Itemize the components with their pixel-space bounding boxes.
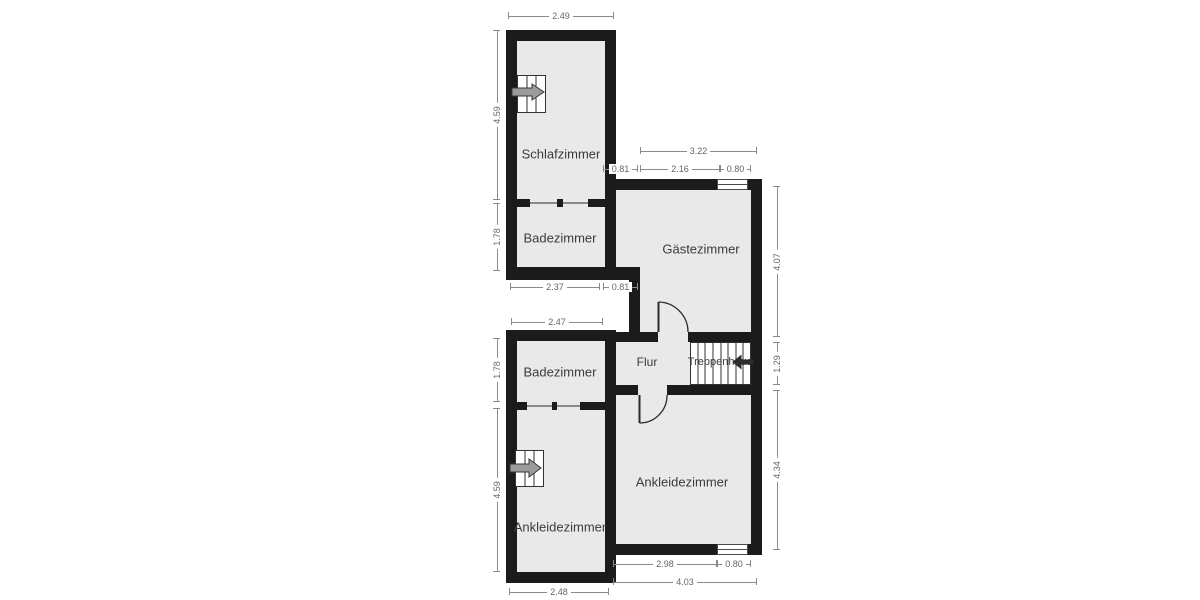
room-label-schlafzimmer: Schlafzimmer xyxy=(522,147,601,162)
window-icon-south xyxy=(717,544,748,555)
sliding-door-line xyxy=(563,202,588,204)
wall-segment xyxy=(588,199,605,207)
dimension-ankleidezimmer-right-window-width: 0.80 xyxy=(717,557,751,571)
ankleidezimmer-stairs-box xyxy=(515,450,544,487)
room-label-ankleidezimmer-right: Ankleidezimmer xyxy=(636,475,728,490)
dimension-badezimmer-top-height: 1.78 xyxy=(490,203,504,271)
room-label-badezimmer-bottom: Badezimmer xyxy=(524,365,597,380)
floor-plan: Schlafzimmer Badezimmer Gästezimmer Flur… xyxy=(0,0,1200,600)
room-label-ankleidezimmer-left: Ankleidezimmer xyxy=(514,520,606,535)
wall-segment xyxy=(506,267,640,280)
wall-segment xyxy=(506,30,616,41)
dimension-badezimmer-bottom-height: 1.78 xyxy=(490,338,504,402)
dimension-ankleidezimmer-right-total-width: 4.03 xyxy=(613,575,757,589)
dimension-gaestezimmer-wall-offset: 0.81 xyxy=(603,162,638,176)
wall-segment xyxy=(517,199,530,207)
dimension-treppenhaus-height: 1.29 xyxy=(770,342,784,385)
wall-segment xyxy=(506,30,517,277)
dimension-gaestezimmer-inner-width: 2.16 xyxy=(640,162,720,176)
dimension-badezimmer-bottom-width: 2.47 xyxy=(511,315,603,329)
dimension-gaestezimmer-window-width: 0.80 xyxy=(720,162,751,176)
room-label-badezimmer-top: Badezimmer xyxy=(524,231,597,246)
wall-segment xyxy=(667,385,762,395)
dimension-gaestezimmer-height: 4.07 xyxy=(770,186,784,337)
dimension-ankleidezimmer-right-inner-width: 2.98 xyxy=(613,557,717,571)
floor-door-threshold-gaestezimmer xyxy=(658,332,688,342)
dimension-ankleidezimmer-left-height: 4.59 xyxy=(490,408,504,572)
wall-segment xyxy=(506,572,616,583)
floor-door-threshold-ankleidezimmer xyxy=(638,385,667,395)
room-label-flur: Flur xyxy=(637,355,658,369)
schlafzimmer-stairs-box xyxy=(517,75,546,113)
floor-ankleidezimmer-right xyxy=(616,395,751,544)
sliding-door-line xyxy=(527,405,552,407)
wall-segment xyxy=(517,402,527,410)
room-label-gaestezimmer: Gästezimmer xyxy=(662,242,739,257)
wall-segment xyxy=(751,179,762,555)
wall-segment xyxy=(580,402,605,410)
dimension-badezimmer-top-width: 2.37 xyxy=(510,280,600,294)
wall-segment xyxy=(605,30,616,280)
dimension-schlafzimmer-width: 2.49 xyxy=(508,9,614,23)
room-label-treppenhaus: Treppenhaus xyxy=(688,356,752,368)
dimension-ankleidezimmer-left-width: 2.48 xyxy=(509,585,609,599)
sliding-door-line xyxy=(557,405,580,407)
window-icon-north xyxy=(717,179,748,190)
dimension-schlafzimmer-height: 4.59 xyxy=(490,30,504,200)
wall-segment xyxy=(506,330,616,341)
wall-segment xyxy=(605,330,616,583)
dimension-gaestezimmer-total-width: 3.22 xyxy=(640,144,757,158)
sliding-door-line xyxy=(530,202,557,204)
wall-segment xyxy=(688,332,762,342)
dimension-corridor-offset: 0.81 xyxy=(603,280,638,294)
dimension-ankleidezimmer-right-height: 4.34 xyxy=(770,390,784,550)
